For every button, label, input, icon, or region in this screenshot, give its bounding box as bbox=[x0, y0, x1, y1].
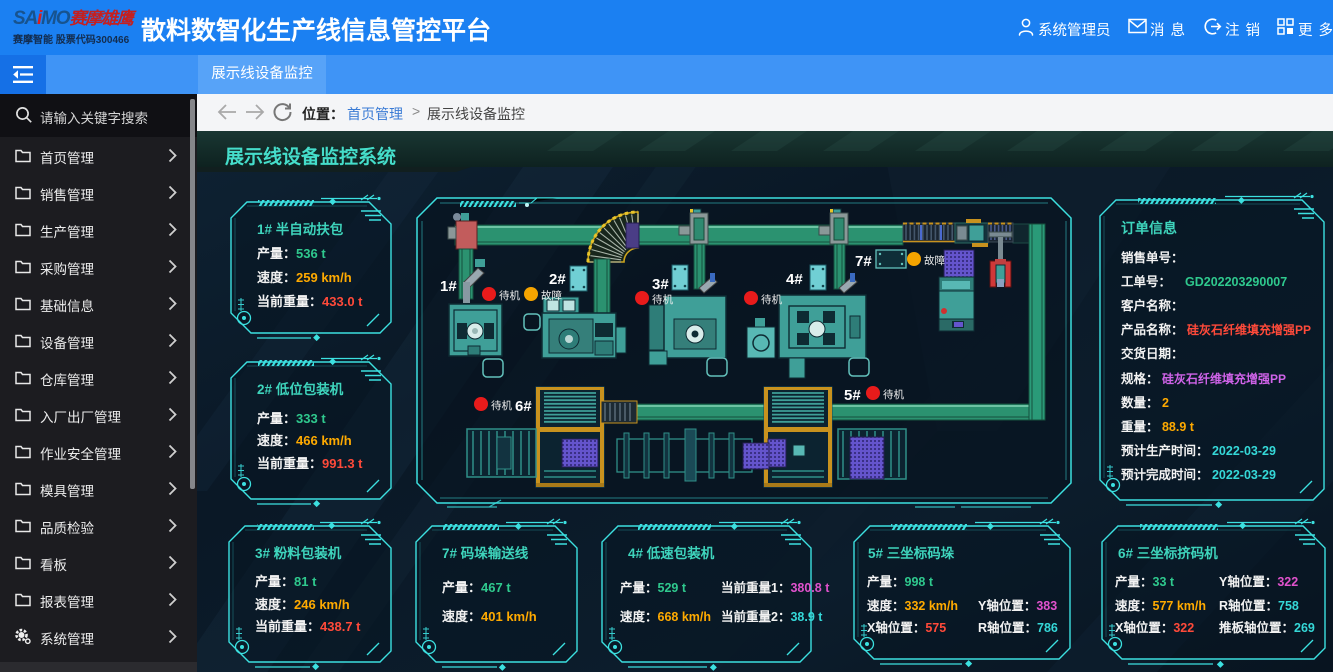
svg-text:2# 低位包装机: 2# 低位包装机 bbox=[257, 381, 344, 397]
svg-text:产量：81 t: 产量：81 t bbox=[255, 574, 317, 589]
svg-text:6# 三坐标挤码机: 6# 三坐标挤码机 bbox=[1118, 545, 1218, 561]
svg-text:Y轴位置：383: Y轴位置：383 bbox=[978, 598, 1057, 613]
svg-text:Y轴位置：322: Y轴位置：322 bbox=[1219, 574, 1298, 589]
svg-text:4#: 4# bbox=[786, 271, 803, 288]
svg-text:产量：333 t: 产量：333 t bbox=[257, 411, 326, 426]
svg-text:速度：332 km/h: 速度：332 km/h bbox=[867, 598, 958, 613]
svg-text:3# 粉料包装机: 3# 粉料包装机 bbox=[255, 545, 342, 561]
svg-text:X轴位置：575: X轴位置：575 bbox=[867, 620, 946, 635]
svg-text:速度：668 km/h: 速度：668 km/h bbox=[620, 609, 711, 624]
svg-text:5# 三坐标码垛: 5# 三坐标码垛 bbox=[868, 545, 955, 561]
svg-text:当前重量：433.0 t: 当前重量：433.0 t bbox=[257, 294, 363, 309]
svg-text:数量： 2: 数量： 2 bbox=[1120, 395, 1169, 410]
svg-text:产量：467 t: 产量：467 t bbox=[442, 580, 511, 595]
svg-text:速度：246 km/h: 速度：246 km/h bbox=[255, 597, 350, 612]
svg-text:推板轴位置：269: 推板轴位置：269 bbox=[1219, 620, 1315, 635]
svg-text:X轴位置：322: X轴位置：322 bbox=[1115, 620, 1194, 635]
svg-text:3#: 3# bbox=[652, 276, 669, 293]
svg-text:规格： 硅灰石纤维填充增强PP: 规格： 硅灰石纤维填充增强PP bbox=[1121, 371, 1286, 386]
svg-text:当前重量1：380.8 t: 当前重量1：380.8 t bbox=[721, 580, 830, 595]
svg-text:工单号： GD202203290007: 工单号： GD202203290007 bbox=[1121, 274, 1287, 289]
svg-text:R轴位置：786: R轴位置：786 bbox=[978, 620, 1058, 635]
svg-text:R轴位置：758: R轴位置：758 bbox=[1219, 598, 1299, 613]
svg-text:待机: 待机 bbox=[761, 293, 782, 306]
svg-text:产品名称： 硅灰石纤维填充增强PP: 产品名称： 硅灰石纤维填充增强PP bbox=[1121, 322, 1311, 337]
svg-text:重量： 88.9 t: 重量： 88.9 t bbox=[1121, 419, 1195, 434]
svg-text:产量：536 t: 产量：536 t bbox=[257, 246, 326, 261]
svg-text:速度：259 km/h: 速度：259 km/h bbox=[257, 270, 352, 285]
svg-text:5#: 5# bbox=[844, 387, 861, 404]
svg-text:速度：466 km/h: 速度：466 km/h bbox=[257, 433, 352, 448]
svg-text:速度：577 km/h: 速度：577 km/h bbox=[1115, 598, 1206, 613]
svg-text:4# 低速包装机: 4# 低速包装机 bbox=[628, 545, 715, 561]
svg-text:1# 半自动扶包: 1# 半自动扶包 bbox=[257, 221, 344, 237]
svg-text:7#: 7# bbox=[855, 253, 872, 270]
svg-text:故障: 故障 bbox=[541, 289, 562, 302]
svg-text:6#: 6# bbox=[515, 398, 532, 415]
svg-text:待机: 待机 bbox=[883, 388, 904, 401]
svg-text:1#: 1# bbox=[440, 278, 457, 295]
svg-text:速度：401 km/h: 速度：401 km/h bbox=[442, 609, 537, 624]
svg-text:客户名称：: 客户名称： bbox=[1120, 298, 1184, 313]
svg-text:当前重量：438.7 t: 当前重量：438.7 t bbox=[255, 619, 361, 634]
svg-text:预计完成时间： 2022-03-29: 预计完成时间： 2022-03-29 bbox=[1121, 467, 1276, 482]
svg-text:交货日期：: 交货日期： bbox=[1121, 346, 1184, 361]
svg-text:销售单号：: 销售单号： bbox=[1121, 250, 1184, 265]
svg-text:预计生产时间： 2022-03-29: 预计生产时间： 2022-03-29 bbox=[1121, 443, 1276, 458]
svg-text:产量：529 t: 产量：529 t bbox=[620, 580, 687, 595]
svg-text:待机: 待机 bbox=[491, 399, 512, 412]
svg-text:展示线设备监控系统: 展示线设备监控系统 bbox=[225, 145, 396, 168]
svg-text:故障: 故障 bbox=[924, 254, 945, 267]
svg-text:当前重量：991.3 t: 当前重量：991.3 t bbox=[257, 456, 363, 471]
svg-text:7# 码垛输送线: 7# 码垛输送线 bbox=[442, 545, 529, 561]
svg-text:当前重量2：38.9 t: 当前重量2：38.9 t bbox=[721, 609, 823, 624]
svg-text:订单信息: 订单信息 bbox=[1121, 220, 1177, 236]
svg-text:2#: 2# bbox=[549, 271, 566, 288]
svg-text:待机: 待机 bbox=[652, 293, 673, 306]
svg-text:产量：33 t: 产量：33 t bbox=[1115, 574, 1175, 589]
svg-text:待机: 待机 bbox=[499, 289, 520, 302]
svg-text:产量：998 t: 产量：998 t bbox=[867, 574, 934, 589]
